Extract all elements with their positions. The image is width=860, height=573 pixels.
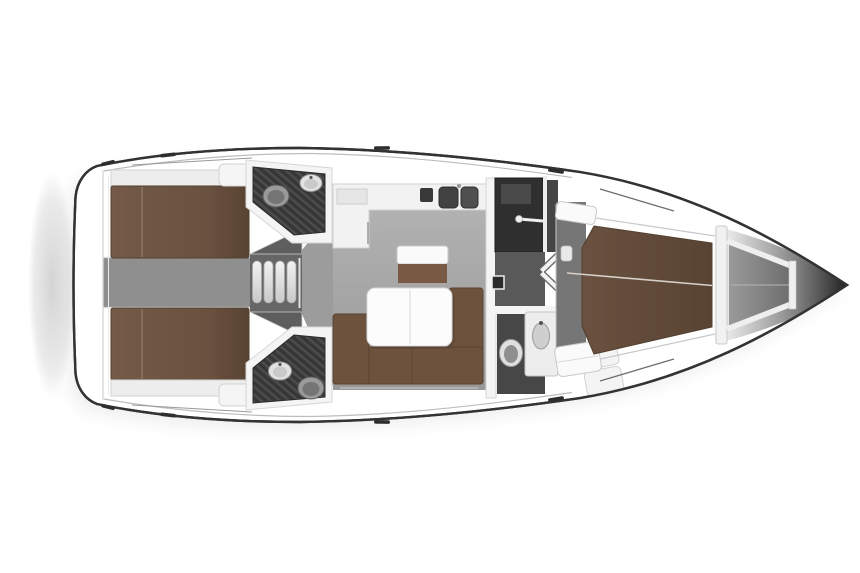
sofa-arm-left <box>333 314 369 384</box>
wardrobe-rod-knob <box>516 216 523 223</box>
yacht-floorplan <box>0 0 860 573</box>
cleat <box>374 146 390 150</box>
galley-sink-right <box>461 187 478 208</box>
aft-cabin-starboard-bed <box>111 308 249 380</box>
nightstand-port <box>219 164 250 186</box>
aft-cabin-port <box>111 164 250 258</box>
salon-table <box>367 288 455 349</box>
galley-faucet <box>457 184 461 188</box>
bow-bulkhead <box>716 226 727 344</box>
wardrobe-panel <box>501 184 531 204</box>
galley-sink-left <box>439 187 458 208</box>
toilet-forward <box>500 340 523 367</box>
toilet-aft-port <box>263 185 289 207</box>
seat-chest-base <box>398 264 447 283</box>
aft-corridor-floor <box>103 257 250 308</box>
wardrobe <box>495 176 558 252</box>
salon-seat-chest <box>397 246 448 283</box>
aft-cabin-port-bed <box>111 186 249 258</box>
companionway-step <box>253 261 262 303</box>
wardrobe-divider <box>543 176 547 252</box>
vanity-basin-forward <box>525 312 558 376</box>
nightstand-starboard <box>219 384 250 406</box>
cleat <box>374 420 390 424</box>
forward-cabin-step <box>561 246 572 261</box>
swim-platform-shadow <box>28 171 76 399</box>
galley-appliance <box>420 188 433 202</box>
washbasin-aft-starboard <box>269 362 292 380</box>
aft-cabin-starboard <box>111 308 250 406</box>
companionway-step <box>264 261 273 303</box>
galley-cooktop <box>337 189 367 204</box>
companionway-step <box>287 261 296 303</box>
corridor-step-box <box>492 276 504 289</box>
yacht-floorplan-canvas <box>0 0 860 573</box>
seat-chest-top <box>397 246 448 264</box>
companionway-step <box>276 261 285 303</box>
toilet-aft-starboard <box>298 377 324 399</box>
washbasin-aft-port <box>300 175 322 192</box>
anchor-locker-brace <box>789 261 796 309</box>
